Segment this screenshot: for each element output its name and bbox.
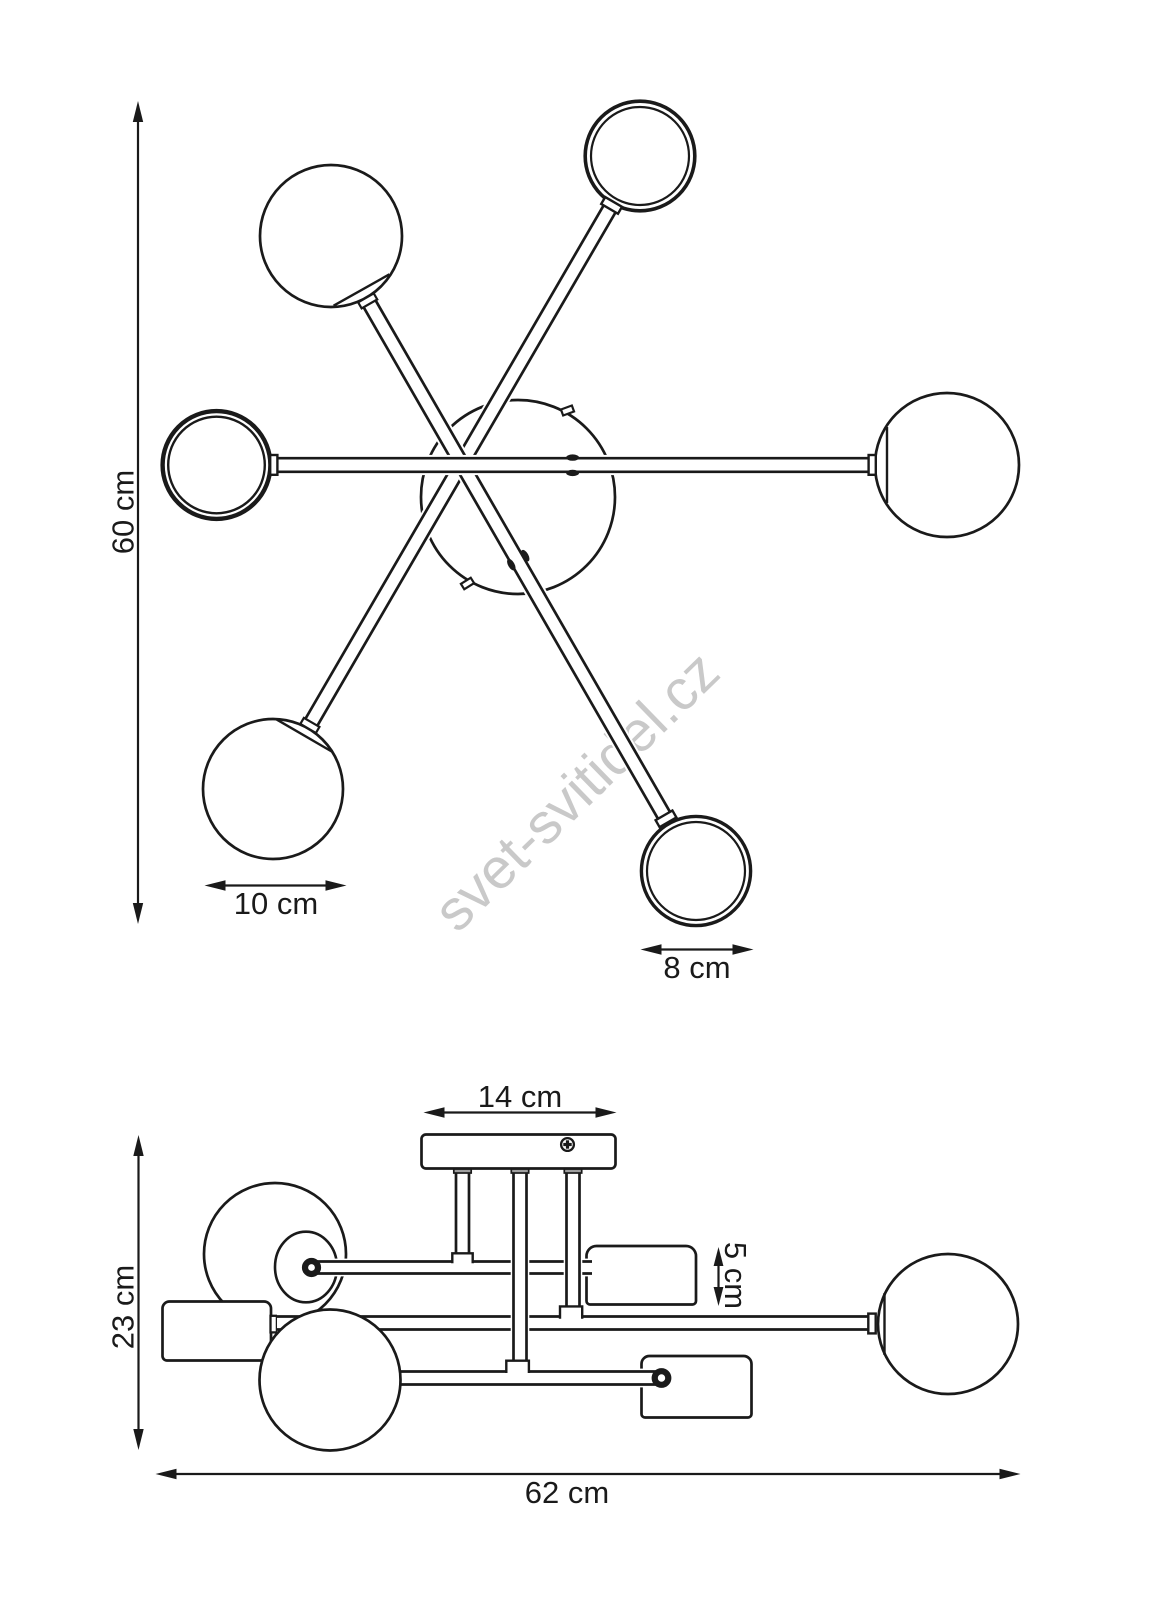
- svg-text:14 cm: 14 cm: [478, 1079, 562, 1114]
- svg-text:5 cm: 5 cm: [718, 1242, 753, 1309]
- svg-text:60 cm: 60 cm: [106, 470, 141, 554]
- svg-text:23 cm: 23 cm: [106, 1265, 141, 1349]
- svg-text:62 cm: 62 cm: [525, 1475, 609, 1510]
- svg-text:8 cm: 8 cm: [663, 950, 730, 985]
- svg-text:10 cm: 10 cm: [234, 886, 318, 921]
